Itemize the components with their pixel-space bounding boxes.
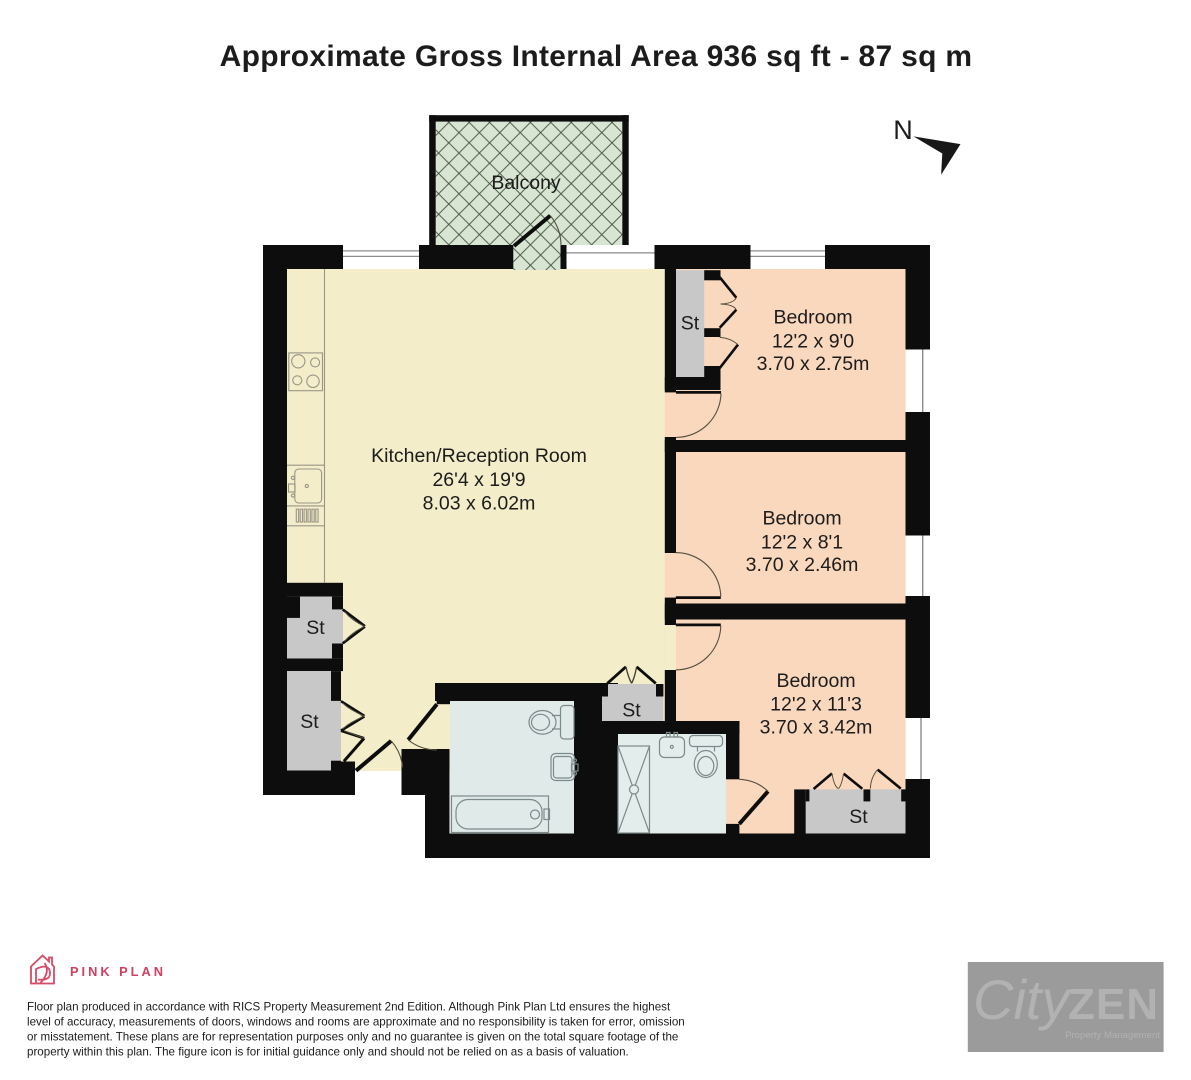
svg-text:property within this plan. The: property within this plan. The figure ic… <box>27 1045 629 1058</box>
svg-text:Kitchen/Reception Room: Kitchen/Reception Room <box>371 445 587 467</box>
svg-text:Approximate Gross Internal Are: Approximate Gross Internal Area 936 sq f… <box>220 40 973 73</box>
svg-text:St: St <box>300 711 319 733</box>
svg-text:26'4 x 19'9: 26'4 x 19'9 <box>432 469 525 491</box>
svg-text:12'2 x 8'1: 12'2 x 8'1 <box>761 532 843 554</box>
svg-text:ZEN: ZEN <box>1068 980 1159 1029</box>
svg-text:12'2 x 9'0: 12'2 x 9'0 <box>772 331 854 353</box>
svg-text:or misstatement. These plans a: or misstatement. These plans are for rep… <box>27 1030 678 1043</box>
svg-text:3.70 x 2.46m: 3.70 x 2.46m <box>746 554 859 576</box>
svg-text:8.03 x 6.02m: 8.03 x 6.02m <box>423 493 536 515</box>
svg-text:3.70 x 2.75m: 3.70 x 2.75m <box>757 353 870 375</box>
svg-text:City: City <box>973 968 1072 1031</box>
svg-text:St: St <box>849 806 868 828</box>
svg-text:PINK PLAN: PINK PLAN <box>70 964 166 979</box>
svg-text:St: St <box>681 313 700 335</box>
svg-text:Property Management: Property Management <box>1065 1030 1160 1041</box>
svg-text:12'2 x 11'3: 12'2 x 11'3 <box>770 694 862 716</box>
svg-text:3.70 x 3.42m: 3.70 x 3.42m <box>760 717 873 739</box>
svg-text:N: N <box>893 115 913 145</box>
svg-text:level of accuracy, measurement: level of accuracy, measurements of doors… <box>27 1015 685 1028</box>
svg-text:Bedroom: Bedroom <box>762 508 841 530</box>
svg-text:Balcony: Balcony <box>491 172 561 194</box>
svg-text:St: St <box>306 617 325 639</box>
svg-text:Bedroom: Bedroom <box>776 670 855 692</box>
svg-text:Bedroom: Bedroom <box>773 307 852 329</box>
svg-text:Floor plan produced in accorda: Floor plan produced in accordance with R… <box>27 1001 671 1014</box>
svg-text:St: St <box>622 700 641 722</box>
